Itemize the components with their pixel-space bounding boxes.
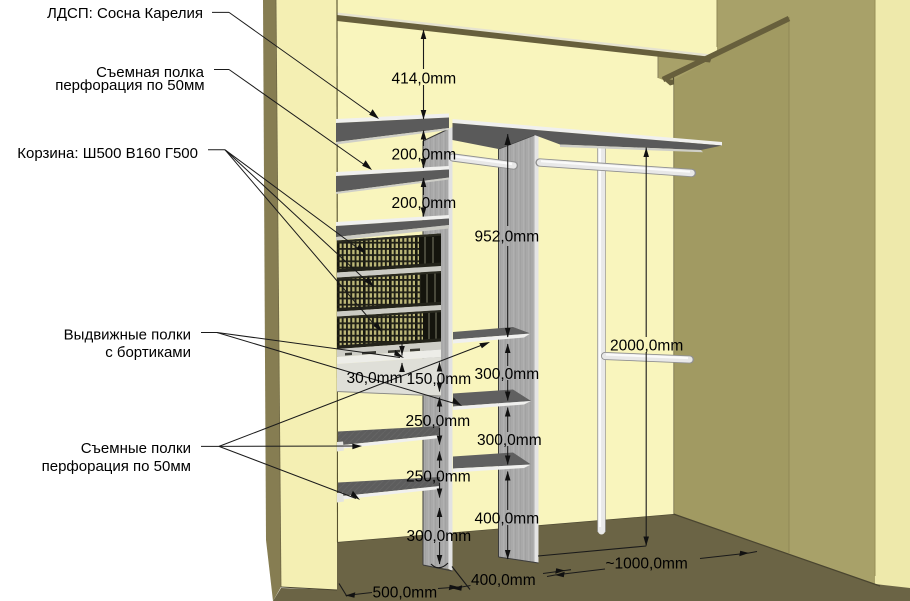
svg-text:2000,0mm: 2000,0mm — [610, 338, 683, 355]
svg-text:Выдвижные полки: Выдвижные полки — [64, 327, 191, 344]
svg-text:250,0mm: 250,0mm — [406, 413, 471, 430]
svg-text:414,0mm: 414,0mm — [392, 71, 457, 88]
svg-text:300,0mm: 300,0mm — [407, 528, 472, 545]
svg-text:400,0mm: 400,0mm — [471, 572, 536, 589]
svg-text:30,0mm: 30,0mm — [347, 370, 403, 387]
svg-text:300,0mm: 300,0mm — [475, 366, 540, 383]
svg-text:500,0mm: 500,0mm — [373, 585, 438, 601]
svg-text:с бортиками: с бортиками — [105, 344, 191, 361]
svg-text:ЛДСП: Сосна Карелия: ЛДСП: Сосна Карелия — [47, 5, 203, 22]
svg-text:200,0mm: 200,0mm — [392, 147, 457, 164]
svg-text:250,0mm: 250,0mm — [406, 469, 471, 486]
svg-text:перфорация по 50мм: перфорация по 50мм — [55, 77, 204, 94]
svg-text:Корзина: Ш500 В160 Г500: Корзина: Ш500 В160 Г500 — [17, 145, 198, 162]
svg-text:~1000,0mm: ~1000,0mm — [606, 556, 688, 573]
svg-text:Съемные полки: Съемные полки — [81, 440, 191, 457]
svg-text:150,0mm: 150,0mm — [407, 371, 472, 388]
svg-text:200,0mm: 200,0mm — [392, 195, 457, 212]
svg-text:перфорация по 50мм: перфорация по 50мм — [42, 458, 191, 475]
svg-text:300,0mm: 300,0mm — [477, 432, 542, 449]
svg-text:400,0mm: 400,0mm — [475, 511, 540, 528]
svg-text:952,0mm: 952,0mm — [475, 229, 540, 246]
